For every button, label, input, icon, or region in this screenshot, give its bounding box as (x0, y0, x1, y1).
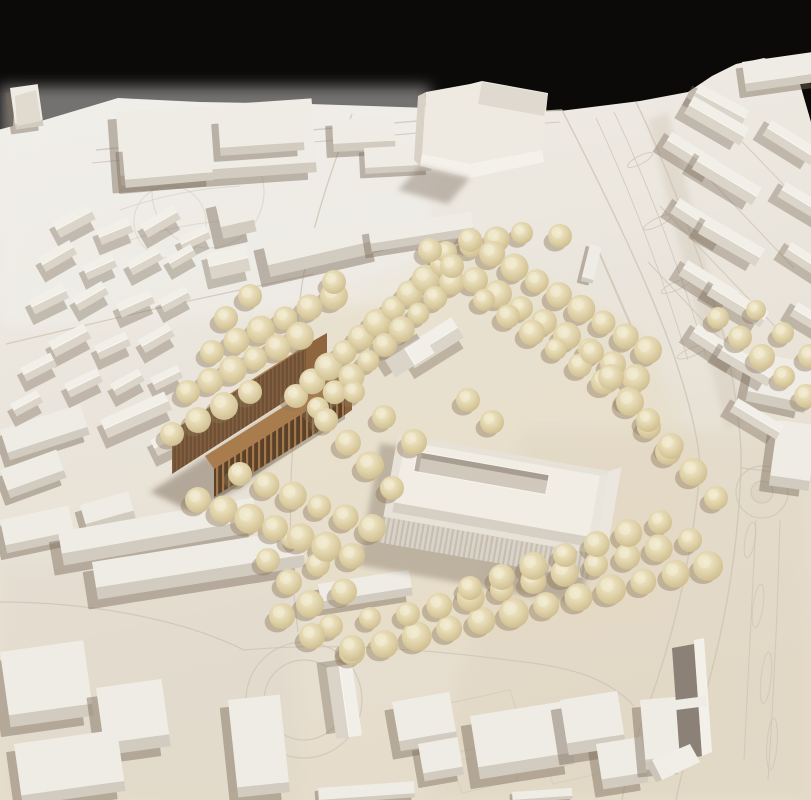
tree-highlight (488, 230, 500, 242)
tree-highlight (626, 368, 639, 381)
tree-highlight (503, 602, 517, 616)
tree-highlight (466, 270, 478, 282)
tree-highlight (189, 410, 201, 422)
building-roof (228, 695, 289, 788)
tree-highlight (732, 329, 743, 340)
tree-highlight (698, 555, 712, 569)
tree-highlight (214, 396, 227, 409)
tree-highlight (204, 343, 215, 354)
tree-highlight (523, 323, 535, 335)
tree-highlight (753, 347, 765, 359)
tree-highlight (472, 610, 485, 623)
tree-highlight (411, 305, 421, 315)
tree-highlight (775, 325, 785, 335)
building-flat (219, 695, 291, 800)
tree-highlight (444, 257, 455, 268)
tree-highlight (326, 273, 337, 284)
tree-highlight (288, 387, 299, 398)
tree-highlight (360, 455, 373, 468)
building-flat (211, 112, 305, 162)
building-flat (115, 138, 214, 194)
tree-highlight (550, 285, 562, 297)
tree-highlight (311, 497, 322, 508)
tree-highlight (257, 475, 269, 487)
building-flat (411, 737, 465, 788)
tree-highlight (557, 326, 570, 339)
tree-highlight (362, 518, 375, 531)
tree-highlight (524, 556, 537, 569)
tree-highlight (260, 551, 271, 562)
tree-highlight (571, 298, 584, 311)
tree-highlight (400, 284, 412, 296)
tree-highlight (201, 371, 213, 383)
tree-highlight (462, 231, 473, 242)
tree-highlight (227, 331, 239, 343)
tree-highlight (662, 436, 674, 448)
tree-highlight (318, 411, 329, 422)
tree-highlight (440, 619, 452, 631)
tree-highlight (266, 518, 278, 530)
tree-highlight (776, 368, 786, 378)
tree-highlight (528, 272, 539, 283)
tree-highlight (400, 605, 411, 616)
tree-highlight (239, 507, 253, 521)
tree-highlight (682, 531, 693, 542)
tree-highlight (666, 563, 679, 576)
tree-highlight (335, 582, 347, 594)
tree-highlight (342, 367, 354, 379)
tree-highlight (300, 594, 313, 607)
tree-highlight (291, 527, 304, 540)
tree-highlight (323, 617, 334, 628)
tree-highlight (749, 303, 758, 312)
tree-highlight (362, 610, 372, 620)
building-roof (0, 640, 92, 715)
tree-highlight (343, 638, 355, 650)
tree-highlight (361, 353, 371, 363)
tree-highlight (375, 634, 388, 647)
tree-highlight (484, 413, 495, 424)
tree-highlight (303, 626, 315, 638)
architectural-model-photo (0, 0, 811, 800)
tree-highlight (595, 314, 606, 325)
tree-highlight (339, 433, 351, 445)
tree-highlight (316, 535, 330, 549)
tree-highlight (269, 337, 281, 349)
tree-highlight (326, 383, 337, 394)
tree-highlight (427, 289, 438, 300)
building-roof (218, 112, 304, 148)
tree-highlight (280, 572, 292, 584)
tree-highlight (708, 489, 719, 500)
tree-highlight (310, 400, 320, 410)
tree-highlight (500, 307, 511, 318)
tree-highlight (377, 336, 388, 347)
tree-highlight (619, 523, 632, 536)
building-roof (560, 691, 624, 744)
tree-highlight (346, 384, 356, 394)
tree-highlight (617, 327, 629, 339)
tree-highlight (493, 567, 505, 579)
tree-highlight (710, 310, 720, 320)
tree-highlight (242, 287, 253, 298)
tree-highlight (600, 578, 614, 592)
tree-highlight (537, 595, 549, 607)
tree-highlight (223, 359, 236, 372)
tree-highlight (640, 411, 651, 422)
model-scene (0, 0, 811, 800)
tree-highlight (798, 387, 809, 398)
tree-highlight (460, 391, 471, 402)
tree-highlight (277, 309, 288, 320)
tree-highlight (273, 606, 285, 618)
tree-highlight (301, 297, 313, 309)
tree-highlight (319, 356, 332, 369)
tree-highlight (416, 268, 429, 281)
tree-highlight (336, 343, 347, 354)
tree-highlight (376, 408, 387, 419)
tree-highlight (406, 625, 420, 639)
tree-highlight (649, 538, 662, 551)
tree-highlight (430, 596, 442, 608)
tree-highlight (620, 392, 633, 405)
tree-highlight (548, 341, 558, 351)
tree-highlight (588, 534, 600, 546)
tree-highlight (343, 546, 355, 558)
tree-highlight (634, 572, 646, 584)
tree-highlight (405, 432, 417, 444)
tree-highlight (584, 343, 595, 354)
tree-highlight (572, 356, 583, 367)
building-flat (0, 640, 95, 737)
tree-highlight (393, 320, 405, 332)
tree-highlight (483, 244, 495, 256)
tree-highlight (247, 349, 258, 360)
tree-highlight (638, 340, 651, 353)
tree-highlight (214, 499, 227, 512)
tree-highlight (557, 546, 568, 557)
tree-highlight (242, 383, 253, 394)
tree-highlight (569, 587, 582, 600)
tree-highlight (602, 367, 614, 379)
tree-highlight (552, 227, 563, 238)
tree-highlight (352, 328, 364, 340)
tree-highlight (422, 241, 433, 252)
tree-highlight (180, 383, 191, 394)
tree-highlight (652, 513, 663, 524)
building-roof (332, 117, 395, 144)
tree-highlight (462, 579, 473, 590)
tree-highlight (189, 490, 201, 502)
tree-highlight (164, 425, 175, 436)
tree-highlight (283, 485, 296, 498)
tree-highlight (384, 479, 395, 490)
tree-highlight (290, 326, 303, 339)
tree-highlight (588, 556, 599, 567)
tree-highlight (232, 465, 243, 476)
tree-highlight (385, 299, 396, 310)
tree-highlight (337, 507, 349, 519)
tree-highlight (303, 372, 315, 384)
tree-highlight (514, 225, 524, 235)
tree-highlight (476, 292, 486, 302)
tree-highlight (367, 312, 380, 325)
tree-highlight (618, 547, 630, 559)
tree-highlight (505, 257, 518, 270)
tree-highlight (251, 319, 264, 332)
tree-highlight (684, 462, 697, 475)
tree-highlight (218, 309, 229, 320)
